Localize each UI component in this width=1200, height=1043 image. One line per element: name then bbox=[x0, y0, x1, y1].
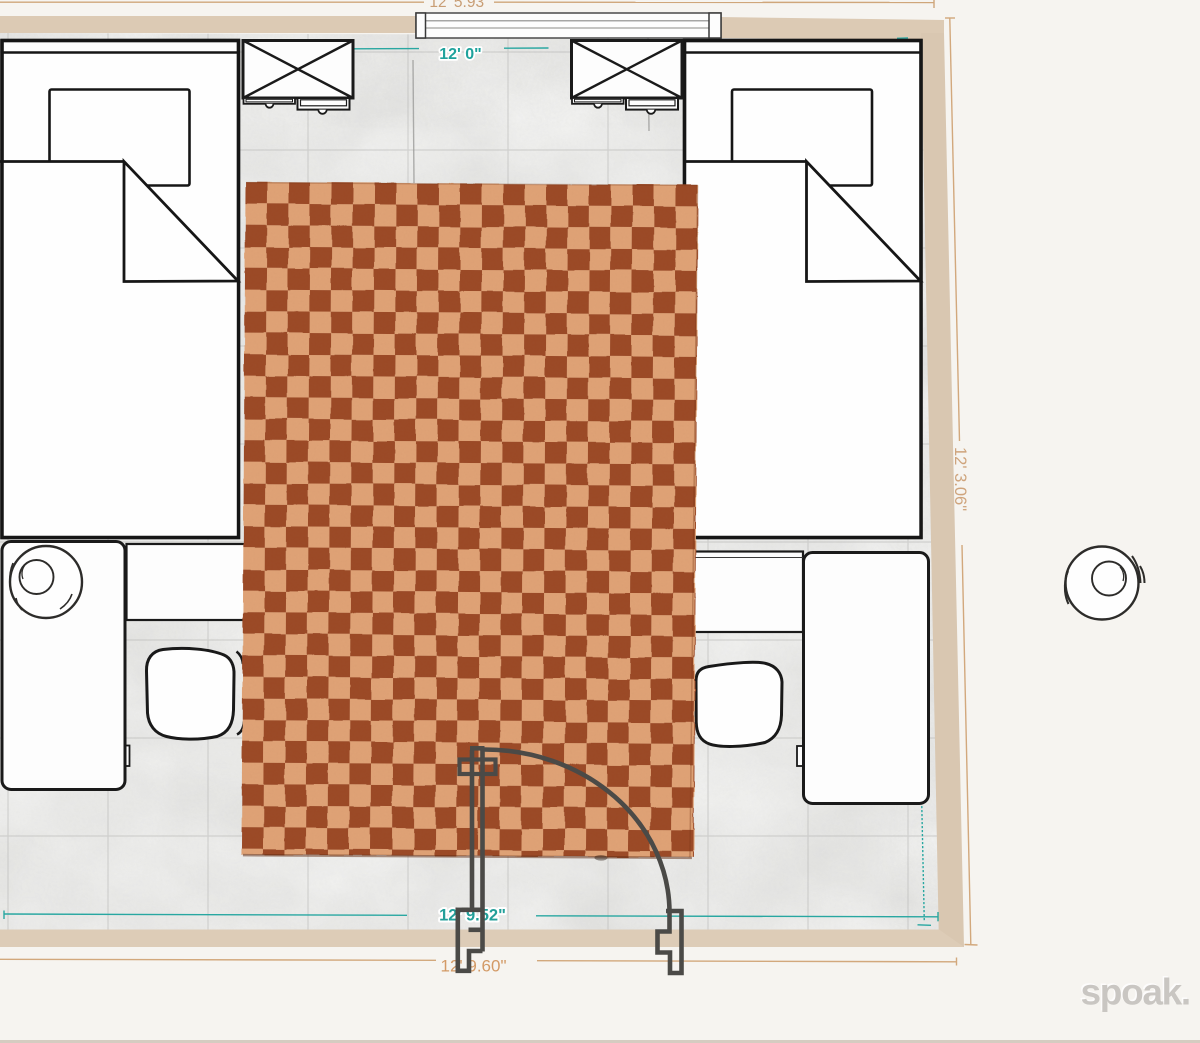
svg-text:12' 3.06": 12' 3.06" bbox=[951, 447, 969, 511]
svg-text:12' 5.93": 12' 5.93" bbox=[429, 0, 489, 11]
svg-text:12' 9.60": 12' 9.60" bbox=[441, 957, 507, 976]
svg-text:spoak.: spoak. bbox=[1081, 972, 1190, 1013]
svg-text:12' 0": 12' 0" bbox=[439, 46, 482, 63]
